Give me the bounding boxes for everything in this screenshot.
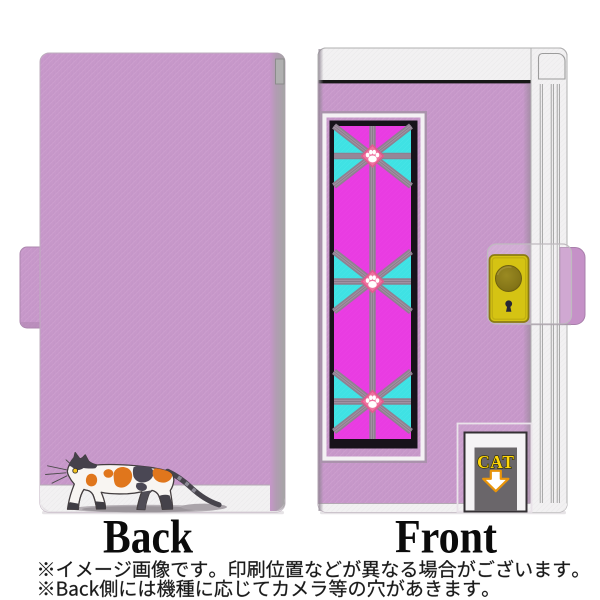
svg-text:CAT: CAT <box>477 452 514 472</box>
svg-text:Back: Back <box>103 511 193 564</box>
svg-text:Front: Front <box>395 511 497 564</box>
